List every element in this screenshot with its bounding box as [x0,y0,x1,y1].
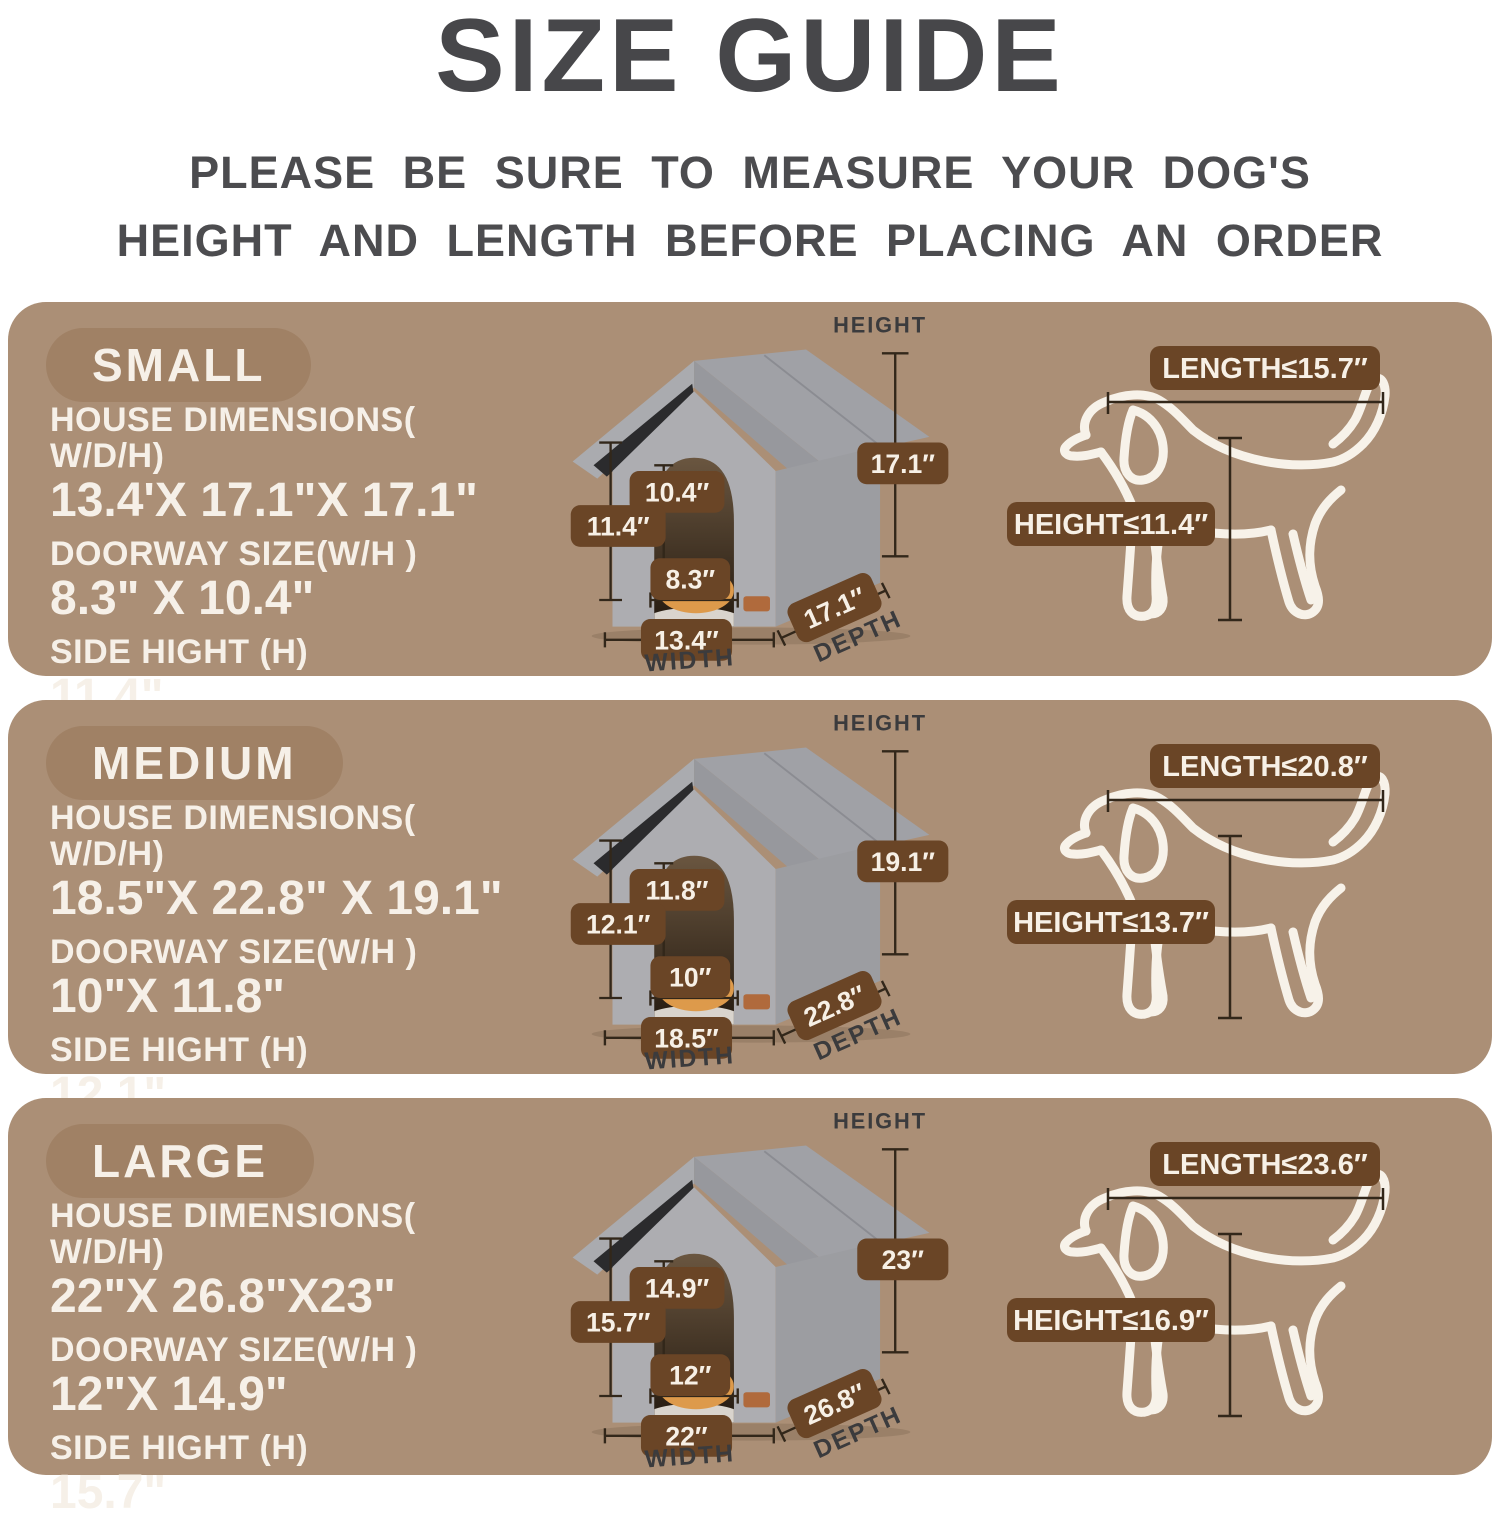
house-illustration: HEIGHT 17.1″ 10.4″ 11.4″ 8.3″ 13.4″ 17.1… [548,304,973,674]
doorway-size-value: 12"X 14.9" [50,1370,530,1421]
size-badge-label: SMALL [92,339,265,391]
width-axis-label: WIDTH [644,1042,736,1072]
spec-list: HOUSE DIMENSIONS( W/D/H) 13.4'X 17.1"X 1… [50,402,530,732]
doorway-size-label: DOORWAY SIZE(W/H ) [50,934,530,970]
dog-measurement-diagram: LENGTH≤23.6″ HEIGHT≤16.9″ [993,1098,1493,1472]
width-axis-label: WIDTH [644,644,736,674]
subtitle-line-2: HEIGHT AND LENGTH BEFORE PLACING AN ORDE… [40,207,1460,275]
dog-height-badge: HEIGHT≤16.9″ [1013,1305,1209,1337]
doorway-size-label: DOORWAY SIZE(W/H ) [50,1332,530,1368]
size-panel-large: LARGE HOUSE DIMENSIONS( W/D/H) 22"X 26.8… [8,1098,1492,1475]
house-dimensions-value: 22"X 26.8"X23" [50,1272,530,1323]
size-badge-large: LARGE [46,1124,314,1198]
door-width-badge: 10″ [669,963,712,993]
house-height-badge: 17.1″ [871,449,936,479]
side-height-label: SIDE HIGHT (H) [50,1430,530,1466]
doorway-size-label: DOORWAY SIZE(W/H ) [50,536,530,572]
dog-measurement-diagram: LENGTH≤20.8″ HEIGHT≤13.7″ [993,700,1493,1074]
door-height-badge: 11.8″ [646,875,709,905]
house-dimensions-label: HOUSE DIMENSIONS( W/D/H) [50,800,530,872]
subtitle-line-1: PLEASE BE SURE TO MEASURE YOUR DOG'S [40,139,1460,207]
door-width-badge: 12″ [669,1361,712,1391]
dog-length-badge: LENGTH≤15.7″ [1162,353,1368,385]
dog-length-badge: LENGTH≤20.8″ [1162,751,1368,783]
header: SIZE GUIDE PLEASE BE SURE TO MEASURE YOU… [0,0,1500,274]
house-height-badge: 19.1″ [871,847,936,877]
dog-height-badge: HEIGHT≤13.7″ [1013,907,1209,939]
door-height-badge: 14.9″ [645,1273,710,1303]
page-title: SIZE GUIDE [0,2,1500,111]
side-height-label: SIDE HIGHT (H) [50,1032,530,1068]
door-width-badge: 8.3″ [665,565,715,595]
height-axis-label: HEIGHT [833,710,927,735]
house-dimensions-value: 13.4'X 17.1"X 17.1" [50,476,530,527]
height-axis-label: HEIGHT [833,312,927,337]
width-axis-label: WIDTH [644,1440,736,1470]
dog-measurement-diagram: LENGTH≤15.7″ HEIGHT≤11.4″ [993,302,1493,676]
size-badge-small: SMALL [46,328,311,402]
side-height-label: SIDE HIGHT (H) [50,634,530,670]
dog-length-badge: LENGTH≤23.6″ [1162,1149,1368,1181]
doorway-size-value: 8.3" X 10.4" [50,574,530,625]
house-dimensions-value: 18.5"X 22.8" X 19.1" [50,874,530,925]
door-height-badge: 10.4″ [645,477,710,507]
height-axis-label: HEIGHT [833,1108,927,1133]
size-badge-label: MEDIUM [92,737,297,789]
house-dimensions-label: HOUSE DIMENSIONS( W/D/H) [50,402,530,474]
house-dimensions-label: HOUSE DIMENSIONS( W/D/H) [50,1198,530,1270]
house-illustration: HEIGHT 23″ 14.9″ 15.7″ 12″ 22″ 26.8″ WID… [548,1100,973,1470]
size-guide-page: { "title": "SIZE GUIDE", "subtitle_line1… [0,0,1500,1481]
page-subtitle: PLEASE BE SURE TO MEASURE YOUR DOG'S HEI… [40,139,1460,274]
spec-list: HOUSE DIMENSIONS( W/D/H) 18.5"X 22.8" X … [50,800,530,1130]
size-badge-medium: MEDIUM [46,726,343,800]
house-height-badge: 23″ [882,1245,925,1275]
size-badge-label: LARGE [92,1135,268,1187]
side-height-value: 15.7" [50,1468,530,1519]
side-height-badge: 15.7″ [586,1307,651,1337]
side-height-badge: 12.1″ [586,909,651,939]
house-illustration: HEIGHT 19.1″ 11.8″ 12.1″ 10″ 18.5″ 22.8″… [548,702,973,1072]
side-height-badge: 11.4″ [587,511,650,541]
size-panel-small: SMALL HOUSE DIMENSIONS( W/D/H) 13.4'X 17… [8,302,1492,676]
dog-height-badge: HEIGHT≤11.4″ [1014,509,1208,541]
doorway-size-value: 10"X 11.8" [50,972,530,1023]
spec-list: HOUSE DIMENSIONS( W/D/H) 22"X 26.8"X23" … [50,1198,530,1528]
size-panel-medium: MEDIUM HOUSE DIMENSIONS( W/D/H) 18.5"X 2… [8,700,1492,1074]
